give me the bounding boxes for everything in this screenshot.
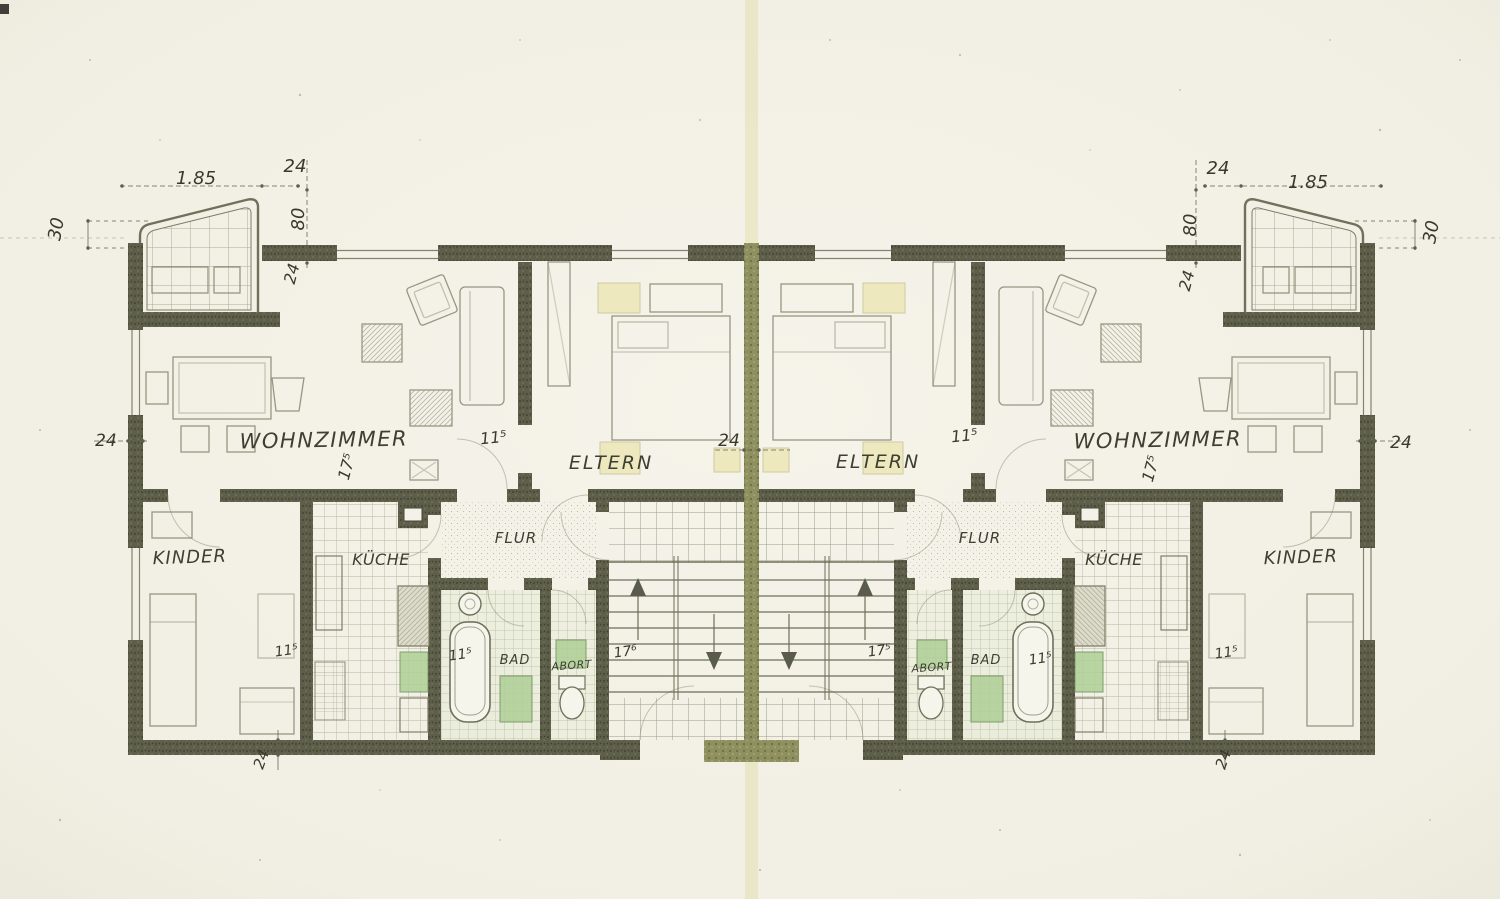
room-label-wohnzimmer-right: WOHNZIMMER <box>1073 427 1242 454</box>
dim-115-bad-left: 11⁵ <box>448 645 474 664</box>
dim-115-wohn-left: 11⁵ <box>479 427 508 449</box>
room-label-kinder-left: KINDER <box>152 546 227 570</box>
room-label-bad-left: BAD <box>500 653 531 668</box>
dim-24-left-edge: 24 <box>95 431 117 451</box>
room-label-wohnzimmer-left: WOHNZIMMER <box>239 427 408 454</box>
room-label-eltern-left: ELTERN <box>569 452 653 474</box>
dim-176-stair-left: 17⁶ <box>613 642 639 661</box>
floor-plan-canvas: WOHNZIMMER ELTERN KINDER KÜCHE FLUR BAD … <box>0 0 1500 899</box>
dim-30-left: 30 <box>44 216 69 242</box>
party-wall <box>744 243 759 755</box>
dim-balcony-width-left: 1.85 <box>176 168 216 189</box>
room-label-kueche-right: KÜCHE <box>1085 550 1143 569</box>
room-label-flur-left: FLUR <box>495 529 537 547</box>
scan-artifact <box>0 4 9 14</box>
room-label-kueche-left: KÜCHE <box>352 550 410 569</box>
room-label-kinder-right: KINDER <box>1263 546 1338 570</box>
dim-80-topleft: 80 <box>288 208 309 231</box>
room-label-flur-right: FLUR <box>959 529 1001 547</box>
room-label-bad-right: BAD <box>971 653 1002 668</box>
dim-115-kinder-right: 11⁵ <box>1214 643 1240 662</box>
entrance-center-pier <box>704 740 799 762</box>
dim-80-topright: 80 <box>1180 214 1201 237</box>
dim-115-bad-right: 11⁵ <box>1028 649 1054 668</box>
dim-24-right-edge: 24 <box>1390 433 1412 453</box>
dim-115-kinder-left: 11⁵ <box>274 641 300 660</box>
room-label-eltern-right: ELTERN <box>836 451 920 473</box>
dim-balcony-width-right: 1.85 <box>1288 172 1328 193</box>
dim-115-wohn-right: 11⁵ <box>950 425 979 447</box>
dim-wall-24-topleft: 24 <box>284 156 307 177</box>
scanned-floor-plan-page: WOHNZIMMER ELTERN KINDER KÜCHE FLUR BAD … <box>0 0 1500 899</box>
dim-175-stair-right: 17⁵ <box>867 641 893 660</box>
dim-30-right: 30 <box>1419 219 1444 245</box>
dim-24-center-wall: 24 <box>718 431 740 451</box>
dim-wall-24-topright: 24 <box>1207 158 1230 179</box>
